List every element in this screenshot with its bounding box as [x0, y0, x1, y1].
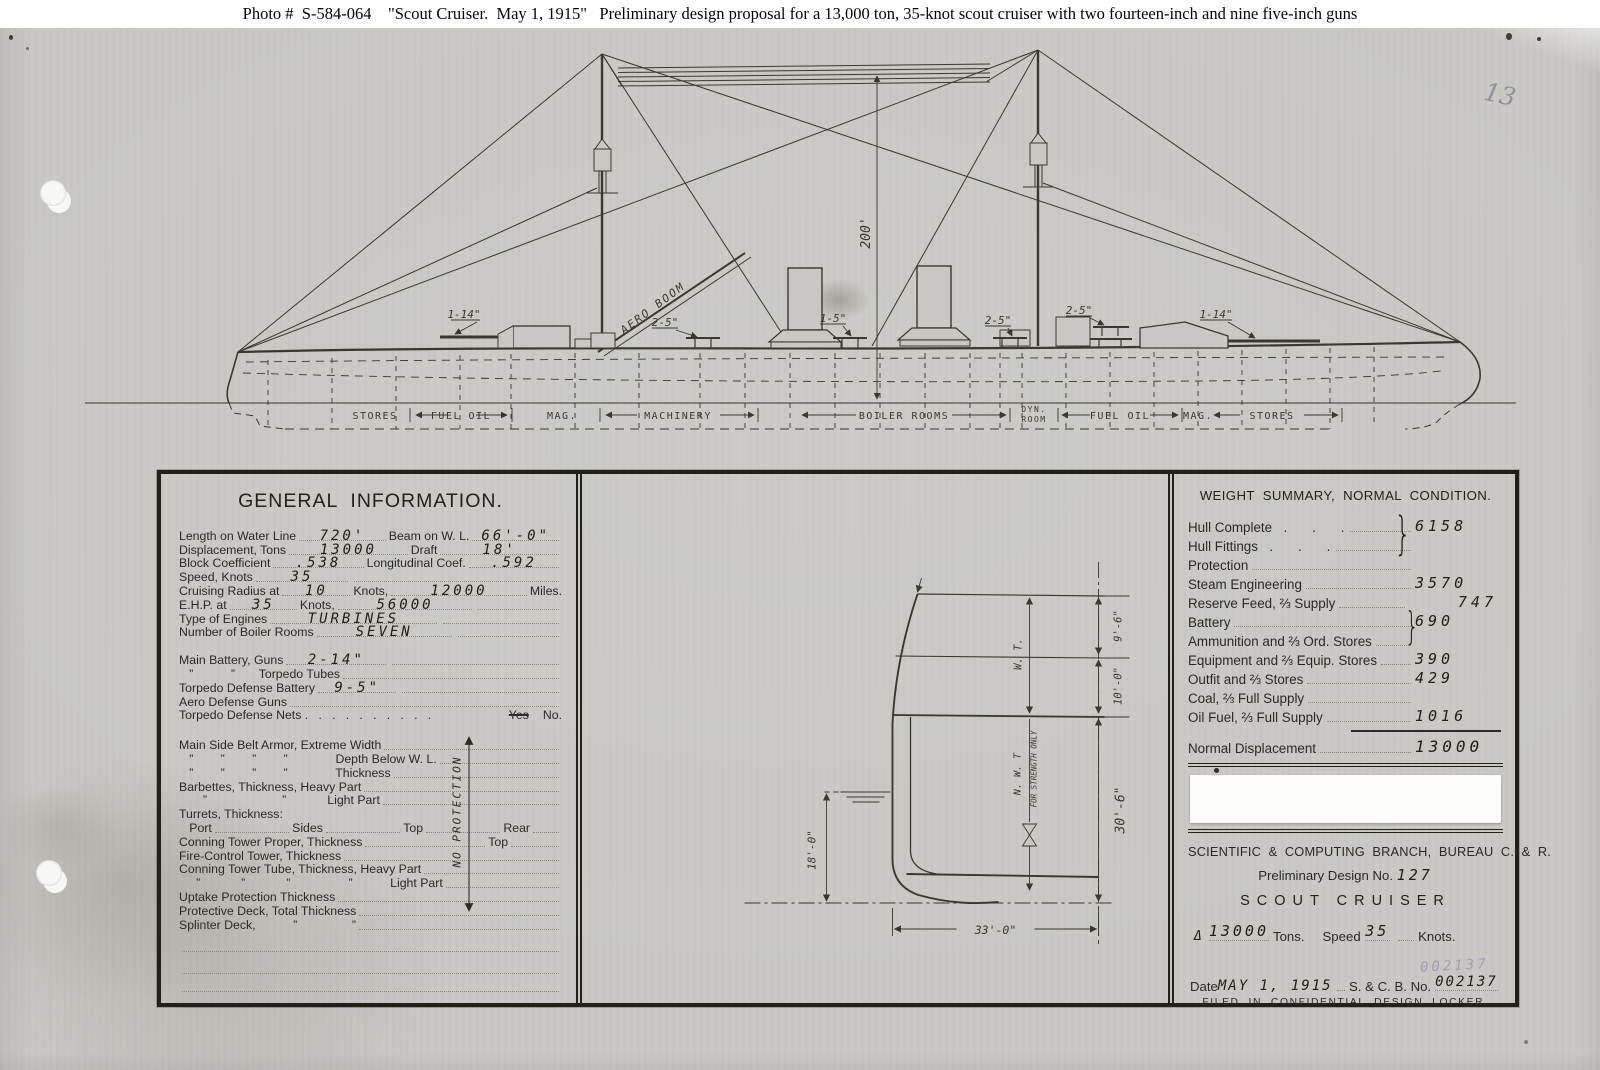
upper-deck — [918, 594, 1105, 596]
dotted-leader: 13000 — [1209, 922, 1269, 941]
weight-row: Battery 690 — [1188, 611, 1503, 630]
agency-line: SCIENTIFIC & COMPUTING BRANCH, BUREAU C.… — [1188, 844, 1503, 859]
dotted-leader — [446, 887, 559, 888]
punch-hole — [36, 860, 62, 886]
dim-label-10ft: 10'-0" — [1113, 667, 1125, 705]
dotted-leader — [1306, 588, 1411, 589]
dotted-leader: SEVEN — [317, 623, 452, 637]
field-value: 13000 — [1415, 737, 1483, 756]
gun-label: 1-14" — [447, 308, 480, 321]
field-value: 9-5" — [334, 680, 380, 696]
design-number: 127 — [1397, 866, 1433, 884]
dotted-leader — [392, 664, 559, 665]
info-row: Torpedo Defense Nets . . . . . . . . . .… — [179, 709, 562, 723]
blank-ruled-line — [179, 994, 562, 1010]
info-row: Torpedo Defense Battery 9-5" — [179, 681, 562, 695]
tons-value: 13000 — [1209, 922, 1269, 940]
dotted-leader — [182, 991, 559, 992]
dotted-leader — [1398, 940, 1414, 941]
dotted-leader — [1381, 664, 1411, 665]
dotted-leader: 2-14" — [286, 651, 386, 665]
info-row: Fire-Control Tower, Thickness — [179, 849, 562, 863]
info-row: Number of Boiler Rooms SEVEN — [179, 626, 562, 640]
field-label: Preliminary Design No. — [1258, 868, 1393, 883]
inner-bottom — [907, 874, 1099, 877]
field-label: Ammunition and ⅔ Ord. Stores — [1188, 634, 1372, 649]
dotted-leader: 35 — [230, 596, 297, 610]
dim-label-18ft: 18'-0" — [806, 830, 819, 870]
weight-summary-title: WEIGHT SUMMARY, NORMAL CONDITION. — [1188, 488, 1503, 503]
field-value: 3570 — [1415, 574, 1467, 592]
field-label: Type of Engines — [179, 613, 267, 626]
platform-deck-line — [246, 357, 1448, 362]
field-value: 2-14" — [308, 652, 365, 668]
field-label: ” ” ” ” Light Part — [179, 877, 443, 890]
weight-value: 429 — [1415, 669, 1503, 687]
field-label: Date — [1190, 979, 1218, 994]
field-label: Length on Water Line — [179, 530, 296, 543]
aft-deckhouse — [1056, 317, 1090, 346]
field-value: 429 — [1415, 669, 1454, 687]
sheer-point-arrow — [918, 578, 922, 592]
info-row: Port Sides Top Rear — [179, 821, 562, 835]
compartment-label: STORES — [352, 411, 397, 422]
wt-label: W. T. — [1013, 638, 1025, 670]
weight-row: Hull Fittings . . . — [1188, 535, 1503, 554]
midship-section-drawing: 18'-0" 33'-0" 9'-6" 10'-0" 30'-6" W. T. … — [582, 474, 1168, 1003]
dotted-leader — [511, 846, 559, 847]
field-label: ” ” Light Part — [179, 794, 380, 807]
info-row: Aero Defense Guns — [179, 695, 562, 709]
field-value: SEVEN — [356, 624, 413, 640]
title-block: SCIENTIFIC & COMPUTING BRANCH, BUREAU C.… — [1188, 844, 1503, 1008]
mast-height-label: 200' — [859, 217, 874, 248]
dotted-leader — [326, 832, 400, 833]
weight-value: 1016 — [1415, 707, 1503, 725]
gun-label: 1-14" — [1199, 308, 1232, 321]
dotted-leader — [1308, 702, 1411, 703]
field-label: Barbettes, Thickness, Heavy Part — [179, 781, 361, 794]
compartment-label: STORES — [1249, 411, 1294, 422]
dotted-leader: 13000 — [289, 541, 408, 555]
dotted-leader: .592 — [469, 554, 559, 568]
field-label: Hull Fittings — [1188, 539, 1258, 554]
weight-row: Ammunition and ⅔ Ord. Stores — [1188, 630, 1503, 649]
compartment-label: ROOM — [1021, 415, 1046, 424]
dotted-leader — [182, 1007, 559, 1008]
compartment-label: MAG. — [1183, 411, 1213, 422]
dotted-leader — [364, 791, 559, 792]
field-label: Protective Deck, Total Thickness — [179, 905, 356, 918]
funnel-aft — [898, 266, 970, 346]
blank-ruled-line — [179, 976, 562, 994]
bow-foot — [229, 403, 285, 429]
field-value: 1016 — [1415, 707, 1467, 725]
dotted-leader: 720' — [299, 527, 386, 541]
speed-value: 35 — [1365, 922, 1389, 940]
date-line: 002137 Date MAY 1, 1915 S. & C. B. No. 0… — [1188, 974, 1503, 994]
dotted-leader: 002137 — [1435, 974, 1498, 991]
stern-profile — [1460, 342, 1480, 404]
ink-speck — [1524, 1040, 1528, 1044]
gun-14in-forward — [440, 326, 570, 348]
date-value: MAY 1, 1915 — [1218, 978, 1333, 994]
dotted-leader — [182, 951, 559, 952]
weight-value: 690 — [1415, 612, 1503, 630]
field-label: Rear — [503, 822, 530, 835]
dim-label-9ft6: 9'-6" — [1113, 610, 1125, 642]
dotted-leader — [365, 846, 485, 847]
ship-profile-drawing: 200' AERO BOOM 1-14" 2-5" 1-5" 2-5" 2-5"… — [0, 28, 1600, 468]
field-label: Splinter Deck, ” ” — [179, 919, 356, 932]
info-row: ” ” ” ” Light Part — [179, 876, 562, 890]
field-label: Coal, ⅔ Full Supply — [1188, 691, 1304, 706]
redacted-strip — [1190, 775, 1501, 823]
dotted-leader: 12000 — [391, 582, 527, 596]
protective-deck — [893, 715, 1105, 717]
dotted-leader: 35 — [256, 568, 348, 582]
dotted-leader — [478, 609, 559, 610]
field-label: Speed, Knots — [179, 571, 253, 584]
field-label: Speed — [1323, 929, 1361, 944]
gun-label: 2-5" — [652, 316, 679, 329]
field-label: Draft — [411, 544, 438, 557]
scanned-paper: 13 — [0, 28, 1600, 1070]
dotted-leader — [1339, 607, 1405, 608]
photo-caption: Photo # S-584-064 "Scout Cruiser. May 1,… — [243, 4, 1358, 23]
dotted-leader — [359, 929, 559, 930]
field-value: 6158 — [1415, 517, 1467, 535]
funnel-forward — [769, 268, 841, 348]
deck-line — [238, 342, 1460, 352]
general-information-panel: GENERAL INFORMATION. Length on Water Lin… — [161, 474, 582, 1003]
field-label: ” ” ” ” Depth Below W. L. — [179, 753, 437, 766]
info-row: Main Side Belt Armor, Extreme Width — [179, 738, 562, 752]
field-label: Hull Complete — [1188, 520, 1272, 535]
field-label: ” ” ” ” Thickness — [179, 767, 391, 780]
info-row: Conning Tower Tube, Thickness, Heavy Par… — [179, 863, 562, 877]
dim-label-30ft6: 30'-6" — [1114, 787, 1129, 835]
blank-ruled-line — [179, 954, 562, 976]
bridge-house — [575, 339, 591, 348]
weight-value: 6158 — [1415, 517, 1503, 535]
dotted-leader — [338, 901, 559, 902]
weight-row: Reserve Feed, ⅔ Supply 747 — [1188, 592, 1503, 611]
serial-stamp: 002137 — [1420, 956, 1489, 976]
field-label: Aero Defense Guns — [179, 696, 287, 709]
field-label: Main Battery, Guns — [179, 654, 283, 667]
dotted-leader: 56000 — [338, 596, 473, 610]
field-label: Outfit and ⅔ Stores — [1188, 672, 1303, 687]
data-table-box: GENERAL INFORMATION. Length on Water Lin… — [157, 470, 1519, 1007]
midship-section-panel: 18'-0" 33'-0" 9'-6" 10'-0" 30'-6" W. T. … — [582, 474, 1168, 1003]
dotted-leader: 35 — [1365, 922, 1390, 941]
field-label: Normal Displacement — [1188, 741, 1316, 756]
field-label: Top — [488, 836, 508, 849]
field-value: 390 — [1415, 650, 1454, 668]
general-information-title: GENERAL INFORMATION. — [179, 490, 562, 513]
field-value: 747 — [1458, 593, 1497, 611]
dotted-leader — [359, 915, 559, 916]
dotted-leader — [344, 860, 559, 861]
dotted-leader: 18' — [440, 541, 559, 555]
field-label: Equipment and ⅔ Equip. Stores — [1188, 653, 1377, 668]
weight-row: Steam Engineering 3570 — [1188, 573, 1503, 592]
field-label: Torpedo Defense Battery — [179, 682, 315, 695]
leader-dots: . . . — [1272, 520, 1346, 535]
field-label: Steam Engineering — [1188, 577, 1302, 592]
weight-value: 747 — [1409, 593, 1503, 611]
blank-ruled-line — [179, 932, 562, 954]
dotted-leader — [1327, 721, 1411, 722]
outer-shell — [893, 594, 999, 903]
field-label: Protection — [1188, 558, 1248, 573]
bridge-house — [591, 333, 615, 348]
delta-symbol: Δ — [1194, 929, 1205, 944]
antenna-wires — [602, 50, 1038, 86]
field-label: Turrets, Thickness: — [179, 808, 283, 821]
gun-label: 2-5" — [1066, 304, 1093, 317]
weight-value: 390 — [1415, 650, 1503, 668]
field-label: Top — [403, 822, 423, 835]
weight-row: Equipment and ⅔ Equip. Stores 390 — [1188, 649, 1503, 668]
brace-battery-group: } — [1405, 606, 1419, 650]
tons-speed-line: Δ 13000 Tons. Speed 35 Knots. — [1188, 922, 1503, 944]
info-row: Splinter Deck, ” ” — [179, 918, 562, 932]
design-number-line: Preliminary Design No. 127 — [1188, 866, 1503, 884]
dim-label-33ft: 33'-0" — [974, 923, 1017, 937]
dotted-leader — [384, 749, 559, 750]
compartment-label: MAG. — [547, 411, 577, 422]
weight-total-row: Normal Displacement 13000 — [1188, 734, 1503, 756]
dotted-leader — [424, 873, 559, 874]
gun-label: 2-5" — [985, 314, 1012, 327]
info-row: Barbettes, Thickness, Heavy Part — [179, 780, 562, 794]
dotted-leader — [440, 763, 559, 764]
field-label: Displacement, Tons — [179, 544, 286, 557]
ink-speck — [1214, 768, 1219, 773]
dotted-leader — [1337, 990, 1345, 991]
compartment-label: BOILER ROOMS — [859, 411, 949, 422]
filed-note: FILED IN CONFIDENTIAL DESIGN LOCKER. — [1188, 997, 1503, 1008]
panel-divider — [1188, 763, 1503, 767]
weight-row: Protection — [1188, 554, 1503, 573]
platform-deck-line — [243, 370, 1446, 382]
field-label: Knots. — [1418, 929, 1455, 944]
field-label: Number of Boiler Rooms — [179, 626, 314, 639]
field-label: Tons. — [1273, 929, 1305, 944]
sum-rule — [1351, 730, 1501, 732]
gun-14in-aft — [1140, 322, 1320, 348]
field-label: S. & C. B. No. — [1349, 979, 1431, 994]
leader-dots: . . . — [1258, 539, 1332, 554]
dotted-leader — [1320, 752, 1411, 753]
photo-caption-bar: Photo # S-584-064 "Scout Cruiser. May 1,… — [0, 0, 1600, 28]
weight-summary-panel: WEIGHT SUMMARY, NORMAL CONDITION. Hull C… — [1168, 474, 1515, 1003]
field-label: Battery — [1188, 615, 1230, 630]
dotted-leader: 9-5" — [318, 679, 396, 693]
field-label: Conning Tower Proper, Thickness — [179, 836, 362, 849]
field-label: ” ” Torpedo Tubes — [179, 668, 340, 681]
weight-value: 13000 — [1415, 737, 1503, 756]
scb-number: 002137 — [1435, 974, 1498, 990]
info-row: Conning Tower Proper, Thickness Top — [179, 835, 562, 849]
dotted-leader — [443, 623, 559, 624]
info-row: Uptake Protection Thickness — [179, 890, 562, 904]
field-value: 10 — [305, 583, 328, 599]
brace-hull-group: } — [1394, 509, 1411, 562]
field-label: Torpedo Defense Nets . . . . . . . . . . — [179, 709, 431, 722]
stern-foot — [1405, 404, 1460, 429]
dotted-leader — [1307, 683, 1411, 684]
bow-stem — [227, 352, 238, 403]
ship-type: SCOUT CRUISER — [1188, 893, 1503, 909]
weight-value: 3570 — [1415, 574, 1503, 592]
dotted-leader: 10 — [282, 582, 350, 596]
dotted-leader — [426, 832, 500, 833]
weight-row: Hull Complete . . . 6158 — [1188, 516, 1503, 535]
compartment-label: FUEL OIL — [1090, 411, 1150, 422]
inner-shell — [911, 717, 937, 874]
compartment-label: FUEL OIL — [431, 411, 491, 422]
nwt-label: N. W. T — [1013, 752, 1024, 796]
label-leaders — [451, 316, 1255, 338]
info-row: ” ” ” ” Depth Below W. L. — [179, 752, 562, 766]
weight-row: Outfit and ⅔ Stores 429 — [1188, 668, 1503, 687]
weight-row: Oil Fuel, ⅔ Full Supply 1016 — [1188, 706, 1503, 725]
dotted-leader — [394, 777, 559, 778]
nwt-note-label: FOR STRENGTH ONLY — [1030, 730, 1039, 807]
dotted-leader — [1234, 626, 1411, 627]
field-label: Uptake Protection Thickness — [179, 891, 335, 904]
aero-boom — [598, 253, 751, 356]
waterline-marks — [825, 792, 891, 802]
dotted-leader — [533, 832, 559, 833]
field-value: .592 — [491, 555, 537, 571]
panel-divider — [1188, 829, 1503, 833]
field-label: Conning Tower Tube, Thickness, Heavy Par… — [179, 863, 421, 876]
field-option: No. — [543, 709, 562, 722]
field-label: Longitudinal Coef. — [367, 557, 466, 570]
dotted-leader: TURBINES — [270, 610, 436, 624]
dotted-leader — [383, 804, 559, 805]
field-label: Sides — [292, 822, 323, 835]
field-label: Fire-Control Tower, Thickness — [179, 850, 341, 863]
dotted-leader — [215, 832, 289, 833]
field-label: Reserve Feed, ⅔ Supply — [1188, 596, 1335, 611]
dotted-leader — [290, 706, 559, 707]
info-row: ” ” ” ” Thickness — [179, 766, 562, 780]
dotted-leader — [402, 692, 559, 693]
dotted-leader: 66'-0" — [472, 527, 559, 541]
dotted-leader: .538 — [273, 554, 363, 568]
info-row: Protective Deck, Total Thickness — [179, 904, 562, 918]
dotted-leader — [458, 636, 559, 637]
field-label: Oil Fuel, ⅔ Full Supply — [1188, 710, 1323, 725]
dotted-leader — [182, 973, 559, 974]
compartment-label: DYN. — [1021, 405, 1046, 414]
gun-label: 1-5" — [820, 312, 847, 325]
info-row: Block Coefficient .538 Longitudinal Coef… — [179, 557, 562, 571]
field-label: Main Side Belt Armor, Extreme Width — [179, 739, 381, 752]
field-label: Port — [179, 822, 212, 835]
info-row: ” ” Light Part — [179, 794, 562, 808]
field-value: 690 — [1415, 612, 1454, 630]
field-label: Miles. — [530, 585, 562, 598]
field-option-struck: Yes — [509, 709, 529, 722]
info-row: Main Battery, Guns 2-14" — [179, 653, 562, 667]
rigging-stays — [238, 50, 1460, 352]
main-deck — [896, 656, 1105, 658]
field-label: E.H.P. at — [179, 599, 227, 612]
dotted-leader — [1252, 569, 1411, 570]
compartment-label: MACHINERY — [644, 411, 712, 422]
info-row: Turrets, Thickness: — [179, 807, 562, 821]
weight-row: Coal, ⅔ Full Supply — [1188, 687, 1503, 706]
